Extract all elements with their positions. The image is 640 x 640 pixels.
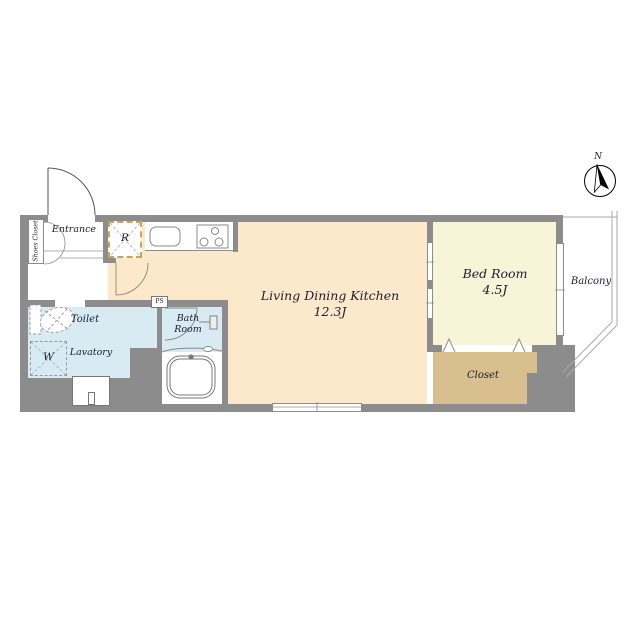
ldk-label: Living Dining Kitchen 12.3J [240,288,420,319]
bedroom-name: Bed Room [435,266,555,282]
north-label: N [585,152,611,163]
wall-closet-front-right [532,345,563,352]
wall-bath-right [222,300,228,412]
entrance-step-lines [43,251,103,258]
bathroom-label: Bath Room [170,313,206,336]
balcony-label: Balcony [565,276,617,289]
wall-divider-top [427,215,433,242]
bedroom-size: 4.5J [435,282,555,298]
bedroom-balcony-window [556,243,564,336]
toilet-label: Toilet [60,314,110,327]
wall-bath-left [157,300,162,412]
ldk-south-window [272,403,362,412]
wall-closet-front-left [427,345,442,352]
bedroom-label: Bed Room 4.5J [435,266,555,297]
lavatory-label: Lavatory [68,347,114,359]
ldk-name: Living Dining Kitchen [240,288,420,304]
wall-hall-toilet-left [28,300,55,307]
kitchen-counter [145,222,233,251]
pipe-space-label: PS [151,298,168,306]
divider-sliding-door-2 [427,288,433,319]
wall-counter-end [233,222,238,252]
lavatory-sink-faucet [88,392,95,405]
wall-right-top [556,215,563,243]
divider-sliding-door-1 [427,242,433,281]
wall-top-main [95,215,563,222]
washer-label: W [30,351,67,364]
refrigerator-label: R [108,232,142,245]
wall-divider-mid [427,281,433,288]
entrance-door-arc [48,168,95,215]
floor-plan: Living Dining Kitchen 12.3J Bed Room 4.5… [0,0,640,640]
north-compass-icon [585,163,616,197]
wall-left [20,215,28,412]
closet-label: Closet [433,370,533,383]
ldk-size: 12.3J [240,304,420,320]
closet-door-opening [442,345,532,352]
room-bathroom-tub-zone [162,352,222,404]
shoes-closet-label: Shoes Closet [28,219,44,264]
entrance-label: Entrance [46,224,102,236]
